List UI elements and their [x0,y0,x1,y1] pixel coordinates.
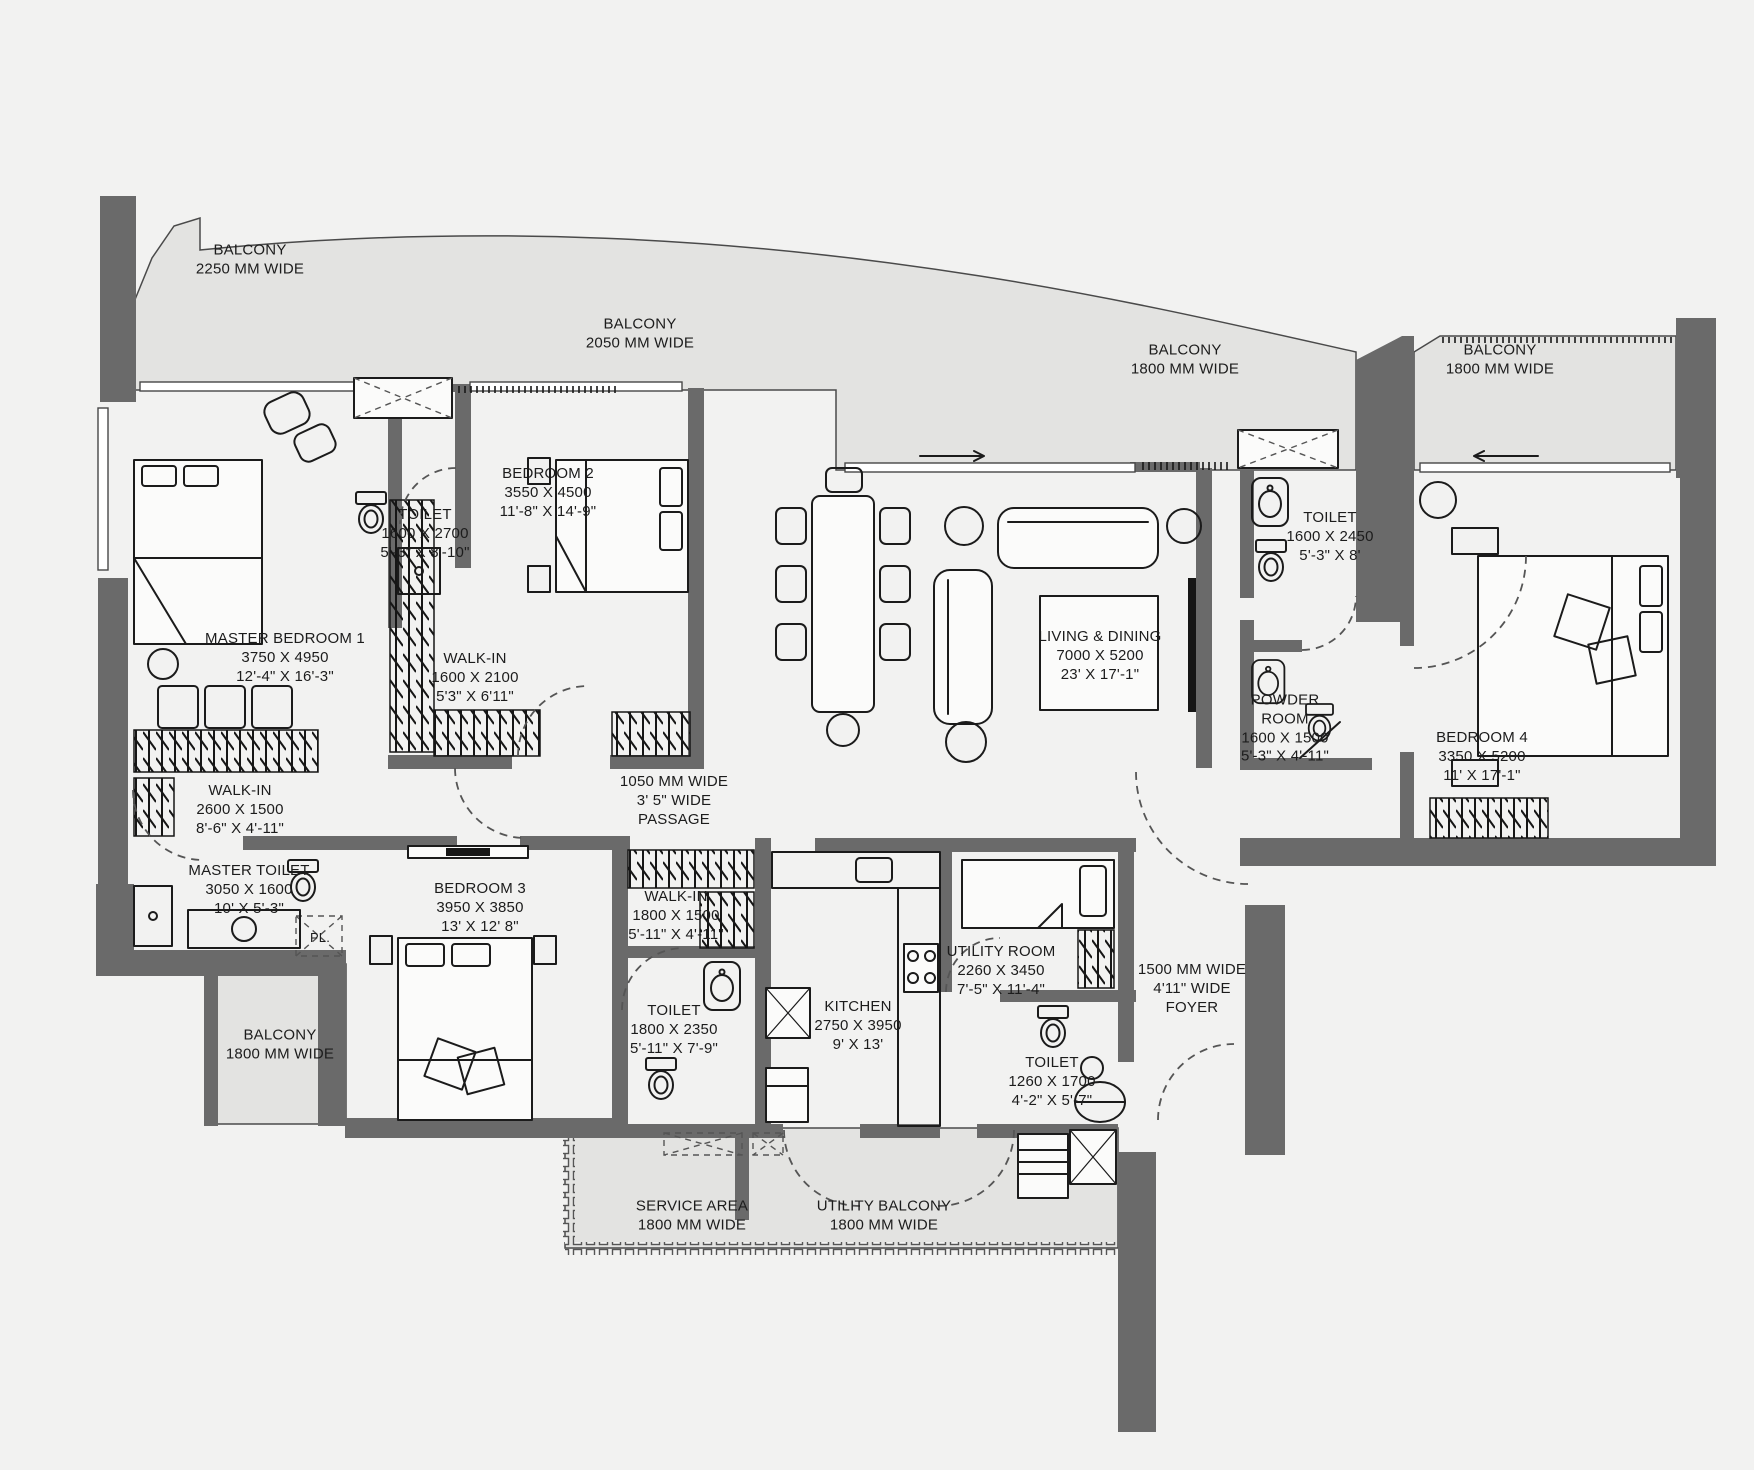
label-line: 1800 X 2350 [630,1021,718,1040]
room-label-balcony-left: BALCONY 1800 MM WIDE [226,1026,334,1064]
label-line: POWDER [1241,692,1329,711]
room-label-powder-room: POWDER ROOM 1600 X 1500 5'-3" X 4'-11" [1241,692,1329,767]
tv-unit-icon [408,846,528,858]
bed-icon [1478,556,1668,756]
foyer-duct-icon [1070,1130,1116,1184]
label-line: BALCONY [226,1026,334,1045]
label-line: 1800 MM WIDE [636,1216,748,1235]
label-line: TOILET [1008,1054,1095,1073]
bed-icon [398,938,532,1120]
fridge-icon [766,1068,808,1122]
label-line: 23' X 17'-1" [1038,665,1161,684]
label-line: 4'11" WIDE [1138,980,1246,999]
label-line: BALCONY [586,315,694,334]
label-line: 2250 MM WIDE [196,260,304,279]
floorplan-page: BALCONY 2250 MM WIDE BALCONY 2050 MM WID… [0,0,1754,1470]
label-line: TOILET [1286,509,1373,528]
label-line: 3050 X 1600 [188,881,309,900]
label-line: BALCONY [196,241,304,260]
shower-icon [134,886,172,946]
label-line: WALK-IN [196,782,284,801]
label-line: 13' X 12' 8" [434,917,526,936]
room-label-toilet-2: TOILET 1600 X 2450 5'-3" X 8' [1286,509,1373,565]
label-line: UTILITY BALCONY [817,1197,951,1216]
label-line: 1050 MM WIDE [620,773,728,792]
wardrobe-icon [1430,798,1548,838]
wardrobe-icon [134,778,174,836]
dryer-icon [1018,1134,1068,1198]
room-label-walk-in-3: WALK-IN 1800 X 1500 5'-11" X 4'-11" [628,888,724,944]
label-line: 3350 X 5200 [1436,748,1528,767]
label-line: KITCHEN [814,998,901,1017]
label-line: 10' X 5'-3" [188,899,309,918]
label-line: 11' X 17'-1" [1436,766,1528,785]
label-line: 2260 X 3450 [947,962,1056,981]
label-line: 5'-3" X 8' [1286,546,1373,565]
label-line: 11'-8" X 14'-9" [500,502,597,521]
label-line: 12'-4" X 16'-3" [205,667,365,686]
label-line: 1600 X 2450 [1286,528,1373,547]
label-line: 3' 5" WIDE [620,792,728,811]
wardrobe-icon [628,850,754,888]
label-line: 7'-5" X 11'-4" [947,980,1056,999]
armchair-icon [1420,482,1456,518]
kitchen-shaft-icon [766,988,810,1038]
side-table-icon [528,566,550,592]
wardrobe-icon [434,710,540,756]
label-line: 8'-6" X 4'-11" [196,819,284,838]
bench-cushions-icon [158,686,292,728]
label-line: PL. [310,930,330,946]
label-line: SERVICE AREA [636,1197,748,1216]
label-line: 7000 X 5200 [1038,647,1161,666]
label-line: BALCONY [1446,341,1554,360]
label-line: 2600 X 1500 [196,801,284,820]
label-line: BEDROOM 3 [434,880,526,899]
label-line: 3550 X 4500 [500,484,597,503]
room-label-balcony-top-left: BALCONY 2250 MM WIDE [196,241,304,279]
label-line: 5'-3" X 4'-11" [1241,748,1329,767]
label-line: 5'-11" X 4'-11" [628,925,724,944]
toilet-icon [646,1058,676,1099]
room-label-living-dining: LIVING & DINING 7000 X 5200 23' X 17'-1" [1038,628,1161,684]
room-label-toilet-4: TOILET 1260 X 1700 4'-2" X 5'-7" [1008,1054,1095,1110]
stool-icon [148,649,178,679]
side-table-icon [534,936,556,964]
label-line: 1500 MM WIDE [1138,961,1246,980]
sink-icon [1252,478,1288,526]
label-line: 2050 MM WIDE [586,334,694,353]
label-line: 1800 MM WIDE [817,1216,951,1235]
side-table-icon [370,936,392,964]
armchair-icon [261,389,339,465]
label-line: MASTER BEDROOM 1 [205,630,365,649]
label-line: BALCONY [1131,341,1239,360]
label-line: 4'-2" X 5'-7" [1008,1091,1095,1110]
room-label-utility-balcony: UTILITY BALCONY 1800 MM WIDE [817,1197,951,1235]
master-bed-icon [134,460,262,644]
label-line: TOILET [630,1002,718,1021]
wardrobe-icon [1078,930,1114,988]
room-label-bedroom-3: BEDROOM 3 3950 X 3850 13' X 12' 8" [434,880,526,936]
label-line: 1800 MM WIDE [1131,360,1239,379]
label-line: 1600 X 2100 [431,669,518,688]
label-line: 1260 X 1700 [1008,1073,1095,1092]
room-label-walk-in-1: WALK-IN 1600 X 2100 5'3" X 6'11" [431,650,518,706]
duct-icon [354,378,452,418]
label-line: 1800 MM WIDE [226,1045,334,1064]
label-line: 5'-11" X 7'-9" [630,1039,718,1058]
label-line: 3950 X 3850 [434,899,526,918]
label-line: WALK-IN [431,650,518,669]
toilet-icon [1256,540,1286,581]
label-line: MASTER TOILET [188,862,309,881]
room-label-kitchen: KITCHEN 2750 X 3950 9' X 13' [814,998,901,1054]
room-label-bedroom-4: BEDROOM 4 3350 X 5200 11' X 17'-1" [1436,729,1528,785]
room-label-service-area: SERVICE AREA 1800 MM WIDE [636,1197,748,1235]
room-label-foyer: 1500 MM WIDE 4'11" WIDE FOYER [1138,961,1246,1017]
label-line: 3750 X 4950 [205,649,365,668]
label-line: LIVING & DINING [1038,628,1161,647]
label-line: WALK-IN [628,888,724,907]
label-line: TOILET [380,506,469,525]
room-label-utility-room: UTILITY ROOM 2260 X 3450 7'-5" X 11'-4" [947,943,1056,999]
label-line: BEDROOM 2 [500,465,597,484]
wardrobe-icon [612,712,690,756]
label-line: ROOM [1241,710,1329,729]
room-label-master-toilet: MASTER TOILET 3050 X 1600 10' X 5'-3" [188,862,309,918]
room-label-pl-shaft: PL. [310,930,330,946]
label-line: 9' X 13' [814,1035,901,1054]
label-line: 1800 X 1500 [628,907,724,926]
room-label-balcony-top-right-2: BALCONY 1800 MM WIDE [1446,341,1554,379]
label-line: 1600 X 1500 [1241,729,1329,748]
label-line: FOYER [1138,998,1246,1017]
room-label-balcony-top-mid: BALCONY 2050 MM WIDE [586,315,694,353]
stove-icon [904,944,938,992]
elevator-icon [1238,430,1338,468]
side-table-icon [1452,528,1498,554]
label-line: 1600 X 2700 [380,525,469,544]
dining-table-icon [776,468,910,746]
room-label-balcony-top-right-1: BALCONY 1800 MM WIDE [1131,341,1239,379]
label-line: 1800 MM WIDE [1446,360,1554,379]
room-label-master-bedroom-1: MASTER BEDROOM 1 3750 X 4950 12'-4" X 16… [205,630,365,686]
label-line: 5'3" X 6'11" [431,687,518,706]
tv-panel-icon [1188,578,1196,712]
furniture [134,389,1668,1198]
room-label-toilet-3: TOILET 1800 X 2350 5'-11" X 7'-9" [630,1002,718,1058]
label-line: 2750 X 3950 [814,1017,901,1036]
room-label-walk-in-2: WALK-IN 2600 X 1500 8'-6" X 4'-11" [196,782,284,838]
label-line: UTILITY ROOM [947,943,1056,962]
label-line: 5'-3" X 8'-10" [380,543,469,562]
utility-bed-icon [962,860,1114,928]
label-line: PASSAGE [620,810,728,829]
toilet-icon [1038,1006,1068,1047]
room-label-passage: 1050 MM WIDE 3' 5" WIDE PASSAGE [620,773,728,829]
room-label-bedroom-2: BEDROOM 2 3550 X 4500 11'-8" X 14'-9" [500,465,597,521]
wardrobe-icon [134,730,318,772]
label-line: BEDROOM 4 [1436,729,1528,748]
room-label-toilet-1: TOILET 1600 X 2700 5'-3" X 8'-10" [380,506,469,562]
